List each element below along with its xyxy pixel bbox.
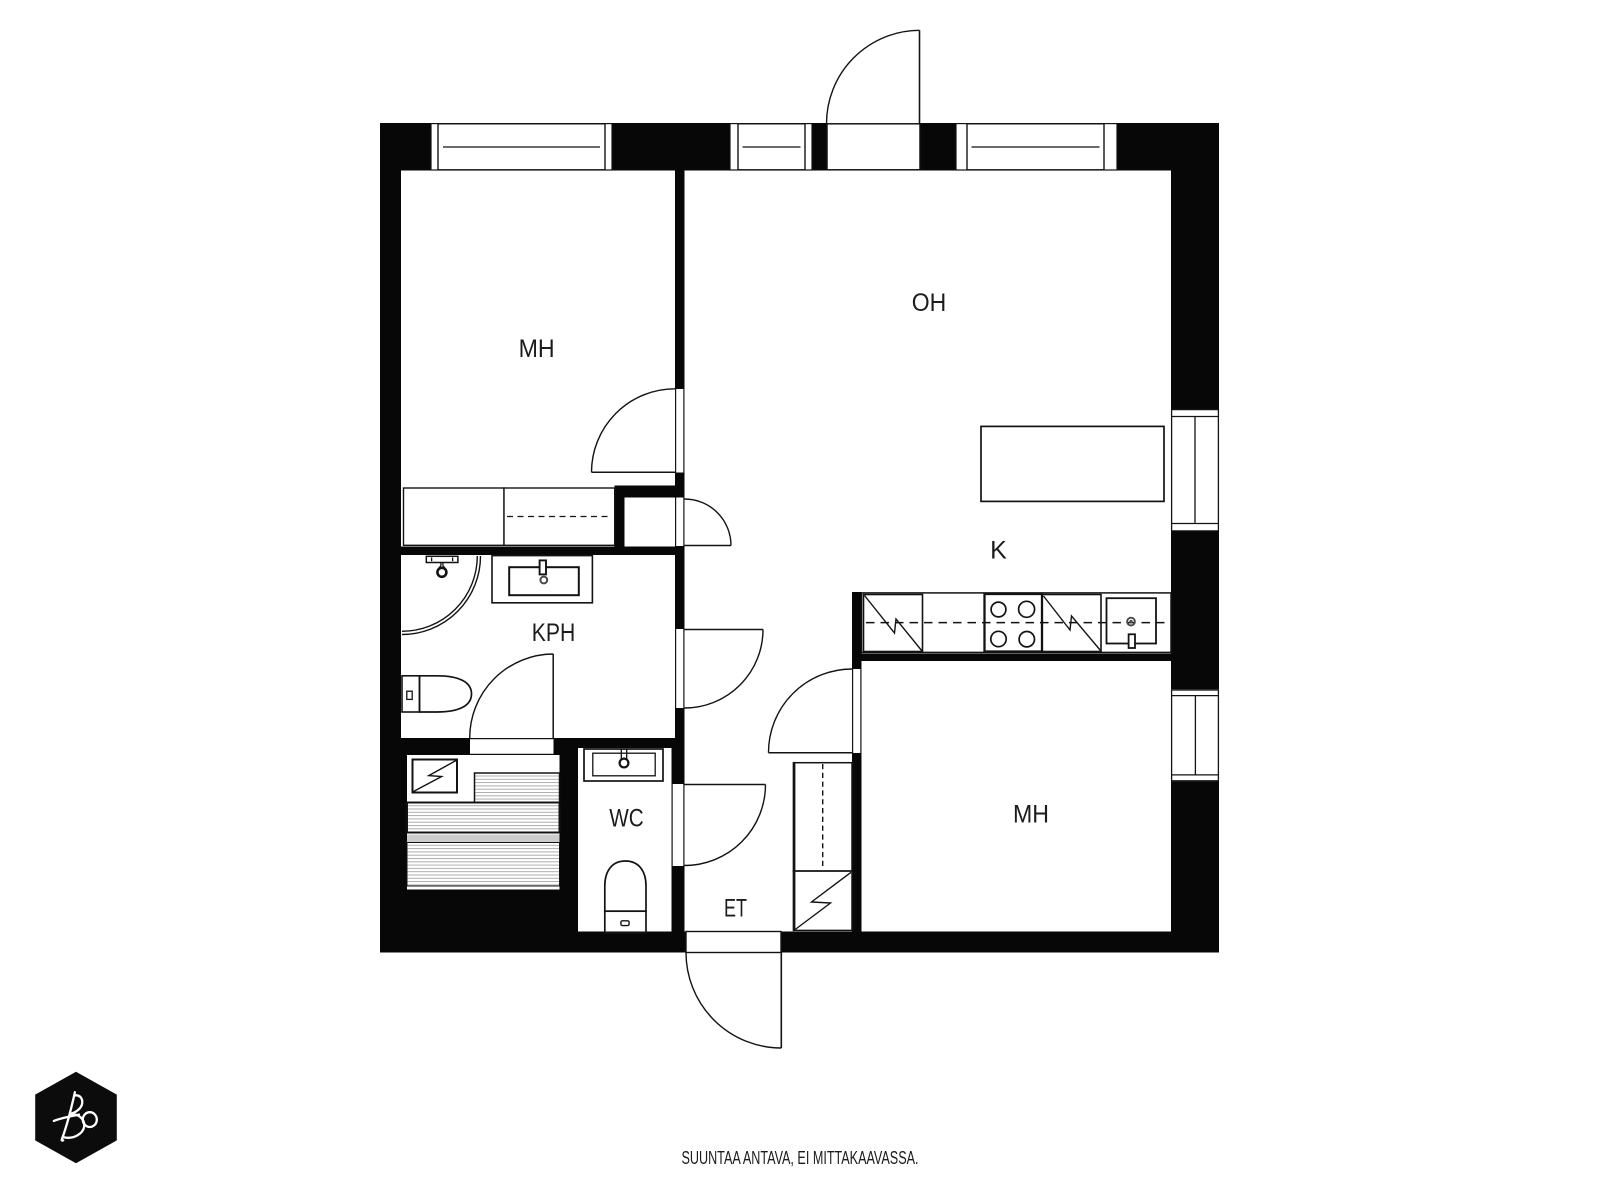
- svg-text:WC: WC: [609, 805, 644, 833]
- svg-text:ET: ET: [724, 895, 747, 923]
- svg-text:KPH: KPH: [532, 619, 576, 647]
- svg-text:MH: MH: [1013, 801, 1049, 829]
- svg-text:MH: MH: [519, 335, 555, 363]
- svg-text:OH: OH: [912, 289, 947, 317]
- svg-text:SUUNTAA ANTAVA, EI MITTAKAAVAS: SUUNTAA ANTAVA, EI MITTAKAAVASSA.: [682, 1148, 919, 1168]
- svg-text:K: K: [990, 537, 1007, 565]
